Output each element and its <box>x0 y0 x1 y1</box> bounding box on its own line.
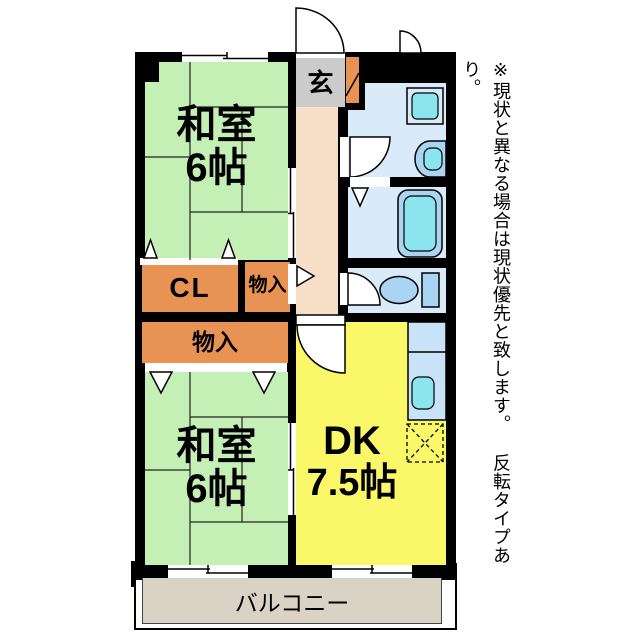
shoe-cabinet <box>346 57 359 103</box>
label-dk: DK 7.5帖 <box>292 412 412 512</box>
closet-front <box>140 258 238 265</box>
disclaimer-note: ※現状と異なる場合は現状優先と致します。 反転タイプあり。 <box>484 60 516 594</box>
floorplan-page: バルコニー <box>0 0 640 640</box>
room-bathroom <box>348 187 446 258</box>
balcony: バルコニー <box>142 578 442 624</box>
window-bottom-left <box>168 565 248 578</box>
balcony-label: バルコニー <box>235 584 350 618</box>
label-storage-2: 物入 <box>142 327 288 358</box>
hallway <box>296 107 338 315</box>
entrance-door-icon <box>296 8 344 53</box>
storage2-front <box>145 363 287 372</box>
label-closet: CL <box>142 268 238 308</box>
small-window-door-icon <box>400 31 421 53</box>
label-storage-1: 物入 <box>245 271 290 301</box>
window-bottom-right <box>332 565 412 578</box>
label-washitsu-2: 和室 6帖 <box>145 418 288 518</box>
room-washroom <box>365 83 446 177</box>
wall-toilet-dk <box>338 313 446 322</box>
label-washitsu-1: 和室 6帖 <box>145 97 288 197</box>
entrance-gap <box>296 50 345 58</box>
label-genkan: 玄 <box>296 64 345 102</box>
sliding-door-washitsu1 <box>288 168 296 258</box>
window-top <box>182 52 268 62</box>
pillar-top-left <box>145 62 159 82</box>
room-toilet <box>348 268 446 313</box>
room-washroom-ext <box>348 110 365 177</box>
